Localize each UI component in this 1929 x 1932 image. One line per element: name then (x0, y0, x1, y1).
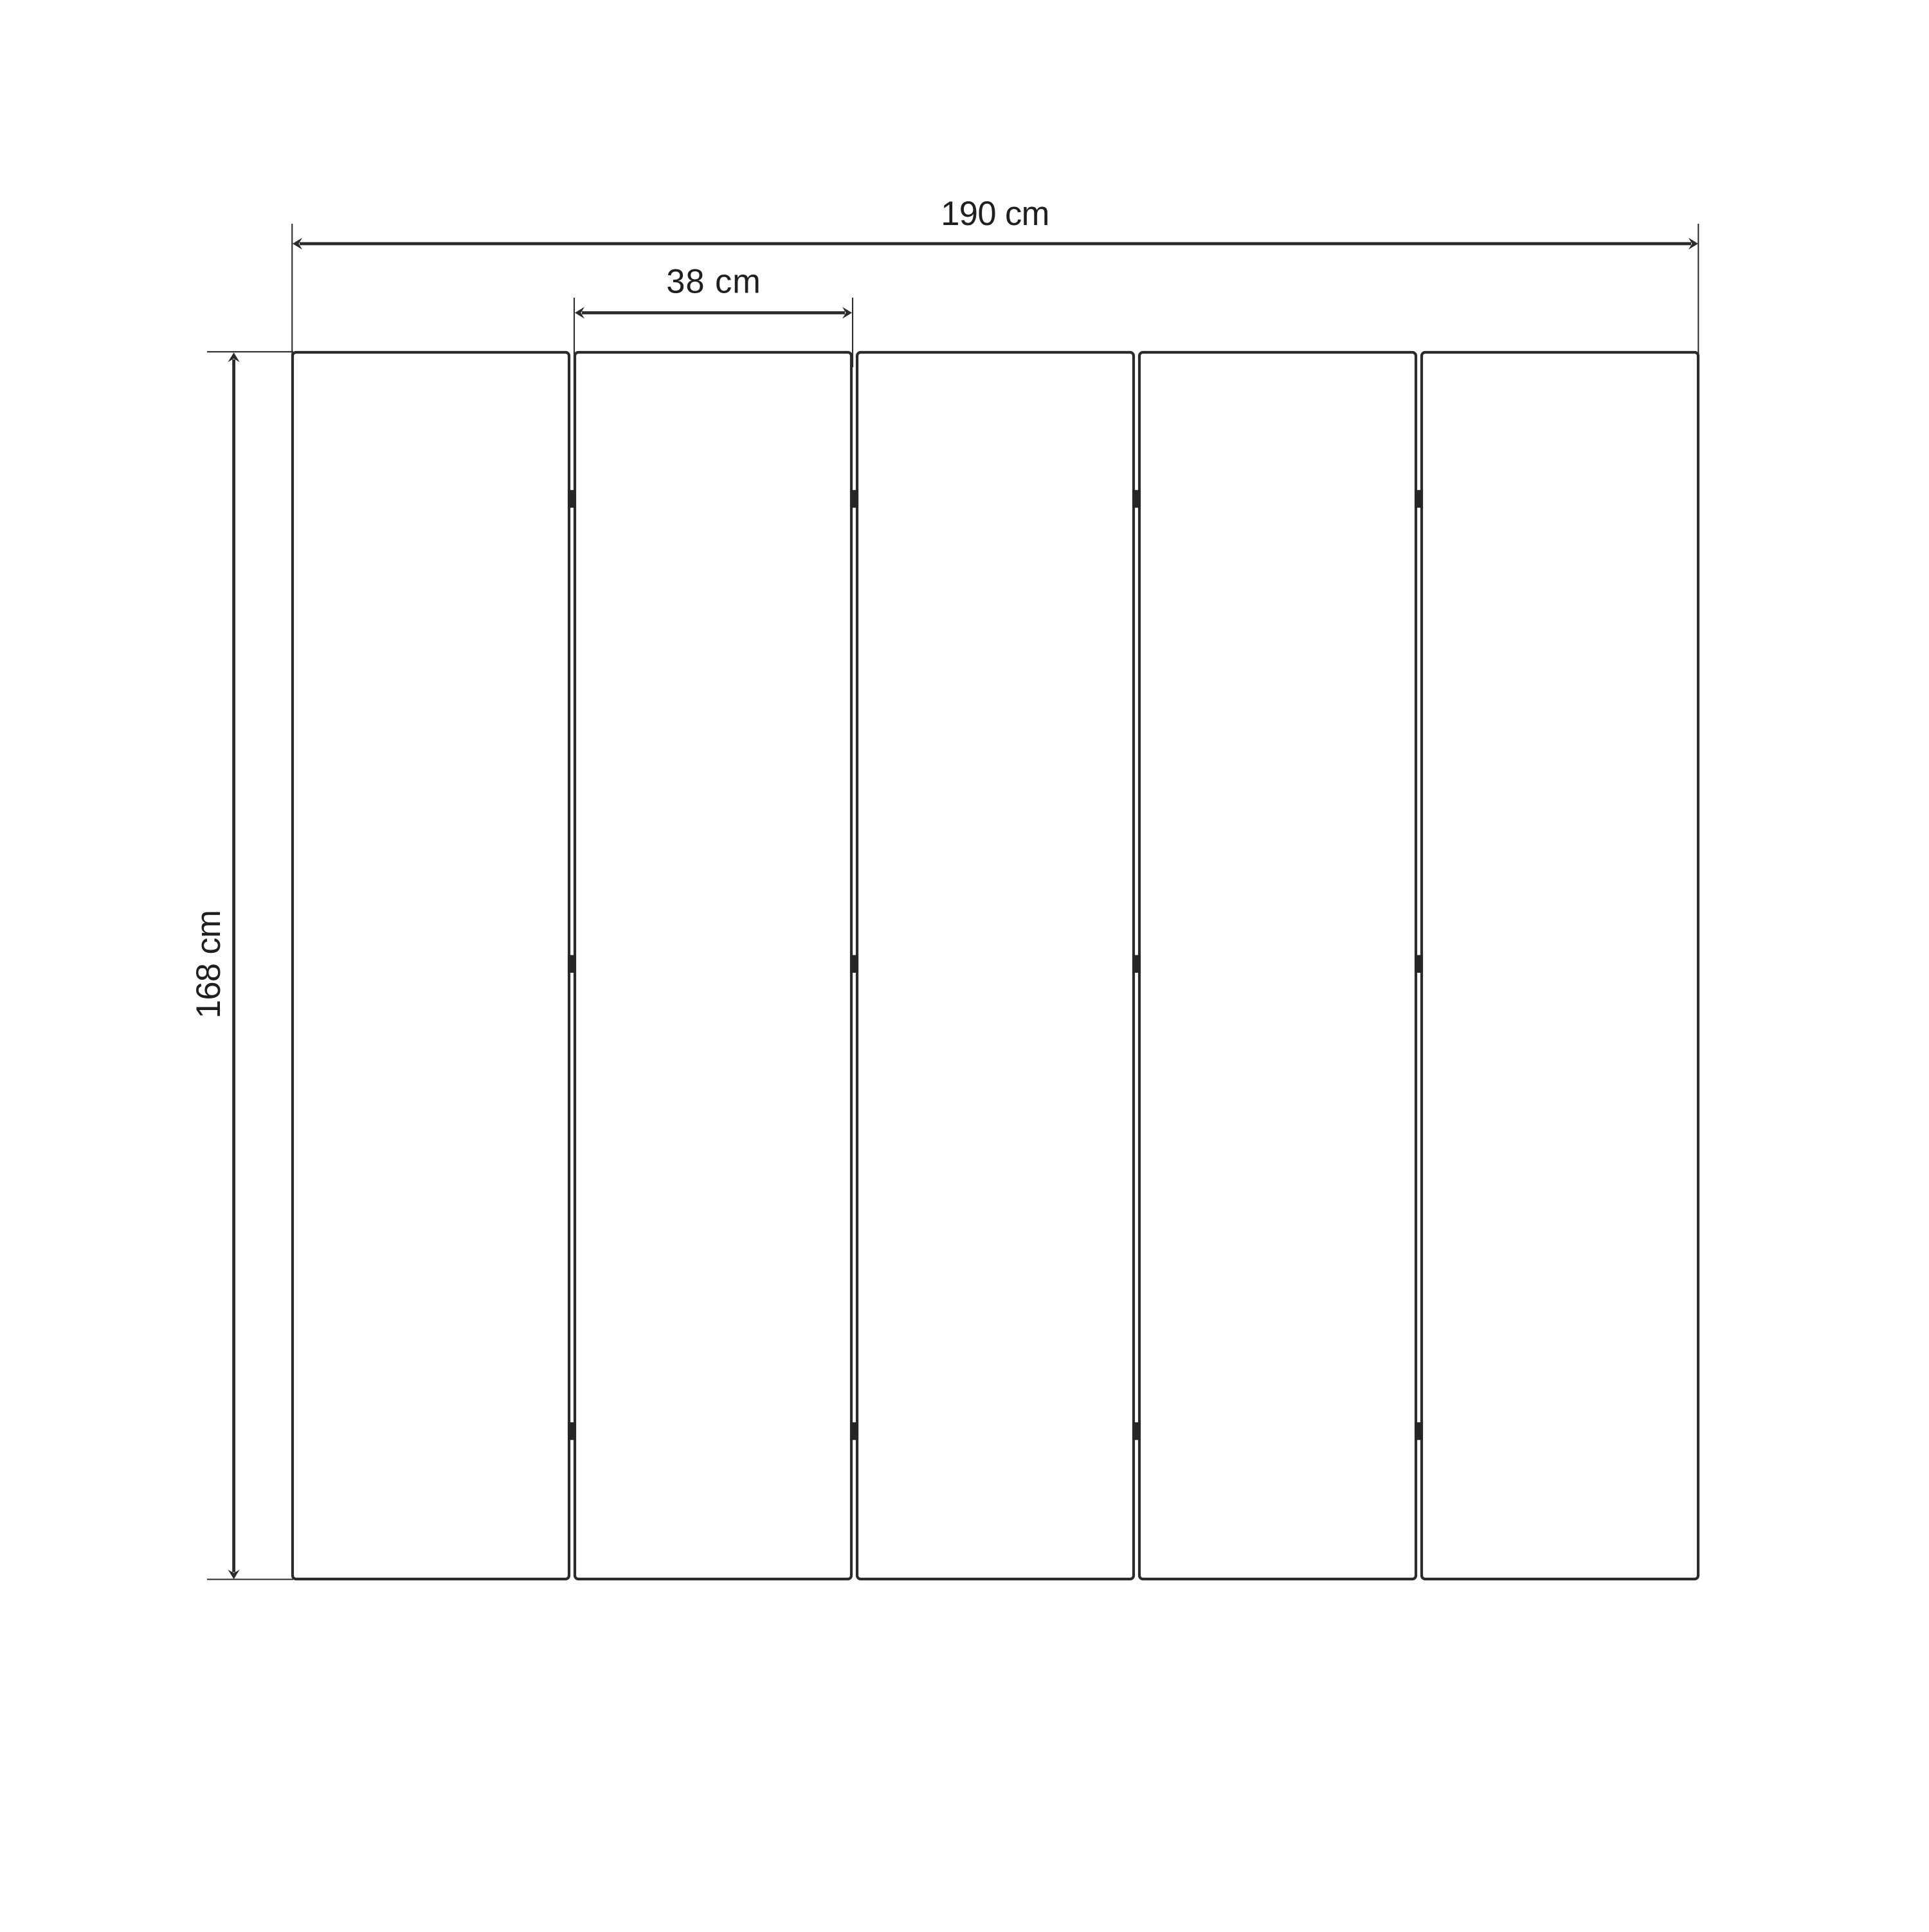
svg-text:168 cm: 168 cm (190, 910, 228, 1019)
svg-text:190 cm: 190 cm (941, 195, 1049, 233)
svg-text:38 cm: 38 cm (666, 263, 761, 301)
